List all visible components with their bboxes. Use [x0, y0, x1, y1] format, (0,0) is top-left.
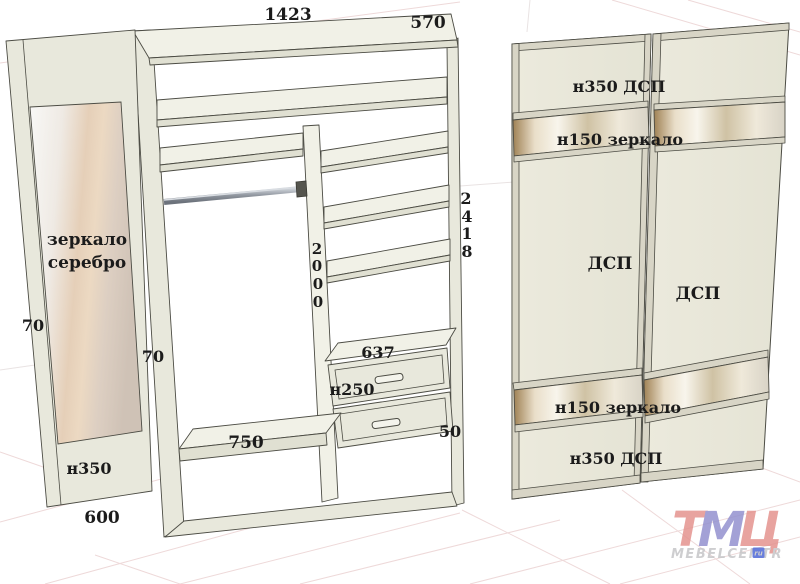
logo-brand-text: MEBELCENTR — [671, 547, 783, 562]
dim-depth-570: 570 — [410, 13, 446, 33]
sliding-doors: н350 ДСП н150 зеркало ДСП ДСП н150 зерка… — [512, 23, 789, 499]
svg-text:2: 2 — [460, 189, 471, 208]
logo-badge-text: ru — [754, 550, 762, 558]
svg-text:0: 0 — [313, 275, 323, 293]
cabinet-carcass: 1423 570 2 4 1 8 2 0 0 0 637 н250 750 50 — [133, 5, 473, 537]
label-right-door-dsp: ДСП — [676, 284, 721, 304]
label-door-bottom-dsp: н350 ДСП — [570, 449, 663, 468]
dim-drawer-width-637: 637 — [361, 343, 394, 362]
hanging-rod — [164, 181, 307, 202]
cabinet-bottom-panel — [165, 492, 457, 537]
dim-total-height-2418: 2 4 1 8 — [460, 189, 472, 261]
right-shelf-2 — [324, 185, 449, 229]
label-door-lower-mirror: н150 зеркало — [555, 398, 681, 417]
wardrobe-diagram: ТМЦ MEBELCENTR ru — [0, 0, 800, 584]
right-shelf-1 — [321, 131, 448, 173]
label-mirror-line2: серебро — [48, 253, 126, 273]
dim-width-1423: 1423 — [264, 5, 311, 25]
dim-panel-600: 600 — [84, 508, 120, 528]
dim-bottom-n350: н350 — [66, 459, 111, 478]
label-door-top-dsp: н350 ДСП — [573, 77, 666, 96]
dim-edge-70-right: 70 — [142, 347, 164, 366]
svg-text:0: 0 — [312, 257, 322, 275]
wardrobe-scheme-page: ТМЦ MEBELCENTR ru — [0, 0, 800, 584]
dim-shelf-750: 750 — [228, 433, 264, 453]
dim-drawer-height-n250: н250 — [329, 380, 374, 399]
svg-text:2: 2 — [312, 240, 322, 258]
svg-text:0: 0 — [313, 293, 323, 311]
label-left-door-dsp: ДСП — [588, 254, 633, 274]
brand-logo: ТМЦ MEBELCENTR ru — [671, 502, 783, 562]
dim-edge-70-left: 70 — [22, 316, 44, 335]
dim-gap-50: 50 — [439, 422, 461, 441]
rod-bracket — [296, 181, 307, 197]
dim-interior-height-2000: 2 0 0 0 — [312, 240, 323, 311]
label-mirror-line1: зеркало — [47, 230, 127, 250]
right-shelf-3 — [327, 239, 450, 283]
svg-text:8: 8 — [461, 242, 472, 261]
label-door-upper-mirror: н150 зеркало — [557, 130, 683, 149]
svg-text:1: 1 — [461, 224, 472, 243]
